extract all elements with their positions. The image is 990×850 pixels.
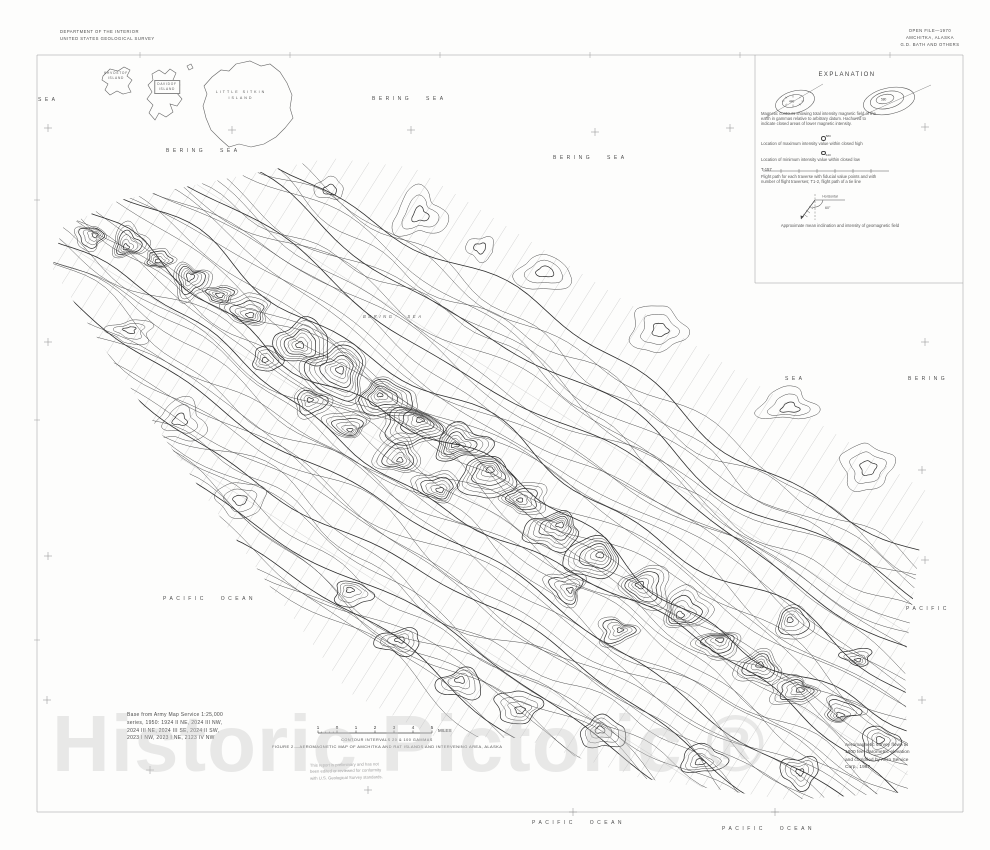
min-intensity-text: Location of minimum intensity value with… [761,158,893,163]
horizontal-label: Horizontal [822,195,838,199]
island-outlines [102,61,293,147]
sea-label: SEA [38,97,59,103]
sea-label: BERING SEA [553,155,628,161]
survey-credit: Aeromagnetic survey flown at 1600 feet b… [845,742,910,772]
island-label: KHVOSTOFISLAND [104,71,128,82]
low-diagram-value: 440 [789,100,795,104]
sea-label: PACIFIC OCEAN [532,820,625,826]
agency-header: DEPARTMENT OF THE INTERIOR UNITED STATES… [60,28,155,42]
flight-path-line [761,167,891,175]
explanation-panel: EXPLANATION 440 580 Magnetic contours sh… [757,70,957,245]
explanation-title: EXPLANATION [787,72,907,78]
map-sheet: 1012345MILES DEPARTMENT OF THE INTERIOR … [0,0,990,850]
agency-line-1: DEPARTMENT OF THE INTERIOR [60,28,155,35]
survey-credit-line: Aeromagnetic survey flown at [845,742,910,749]
inclination-angle: 60° [825,206,831,210]
max-intensity-text: Location of maximum intensity value with… [761,142,893,147]
sea-label: BERING SEA [372,96,447,102]
sea-label: BERING SEA [363,314,424,319]
sea-label: BERING SEA [166,148,241,154]
high-diagram-value: 580 [881,98,887,102]
flight-path-text: Flight path for each traverse with fiduc… [761,175,889,185]
watermark: Historic Pictoric ® [52,698,766,790]
island-label: LITTLE SITKINISLAND [216,89,266,101]
survey-credit-line: 1600 feet barometric elevation [845,749,910,756]
sea-label: PACIFIC [906,606,950,612]
max-intensity-symbol: 580 [761,134,891,141]
inclination-diagram: Horizontal 60° [787,192,867,222]
inclination-text: Approximate mean inclination and intensi… [765,224,915,229]
sea-label: BERING [908,376,948,382]
map-authors: G.D. BATH AND OTHERS [880,41,980,48]
survey-credit-line: Corp., 1967 [845,764,910,771]
sea-label: PACIFIC OCEAN [722,826,815,832]
sea-label: SEA [785,376,806,382]
plate-header: OPEN FILE—1970 AMCHITKA, ALASKA G.D. BAT… [880,27,980,48]
min-intensity-symbol: 440 [761,150,891,157]
magnetic-contours-diagram: 440 580 [759,82,949,120]
agency-line-2: UNITED STATES GEOLOGICAL SURVEY [60,35,155,42]
sea-label: PACIFIC OCEAN [163,596,256,602]
open-file-label: OPEN FILE—1970 [880,27,980,34]
island-label: DAVIDOFISLAND [154,80,180,94]
survey-credit-line: and compiled by Aero Service [845,757,910,764]
map-location: AMCHITKA, ALASKA [880,34,980,41]
